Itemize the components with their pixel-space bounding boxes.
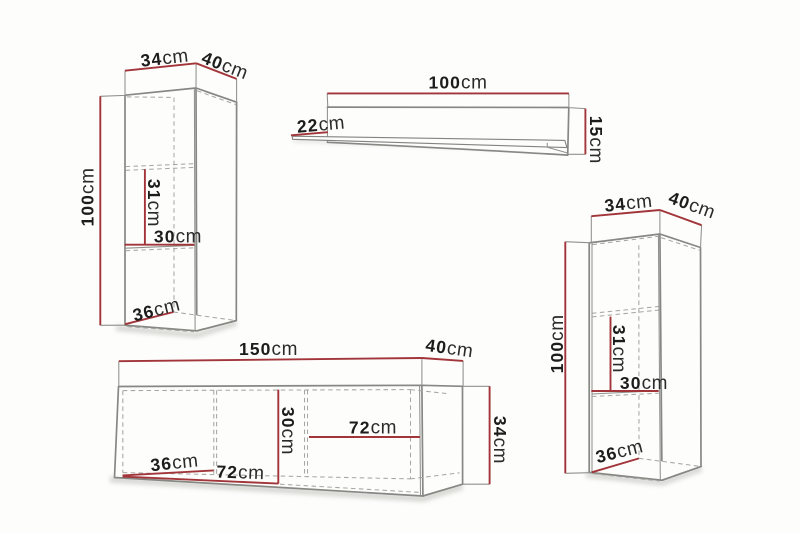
svg-text:31cm: 31cm — [143, 179, 164, 227]
svg-text:72cm: 72cm — [216, 461, 265, 484]
svg-text:40cm: 40cm — [199, 47, 252, 84]
svg-text:34cm: 34cm — [603, 191, 653, 217]
svg-text:34cm: 34cm — [140, 45, 190, 71]
svg-text:40cm: 40cm — [666, 187, 718, 223]
svg-text:30cm: 30cm — [154, 227, 202, 248]
svg-text:100cm: 100cm — [428, 73, 487, 94]
svg-text:100cm: 100cm — [547, 314, 568, 373]
svg-text:72cm: 72cm — [349, 418, 397, 439]
svg-text:100cm: 100cm — [78, 167, 99, 226]
svg-text:30cm: 30cm — [277, 407, 298, 455]
svg-text:34cm: 34cm — [489, 416, 510, 464]
svg-text:15cm: 15cm — [585, 116, 606, 164]
svg-text:31cm: 31cm — [608, 325, 629, 373]
svg-text:30cm: 30cm — [620, 373, 668, 394]
svg-text:22cm: 22cm — [296, 113, 346, 138]
svg-text:150cm: 150cm — [239, 339, 298, 360]
